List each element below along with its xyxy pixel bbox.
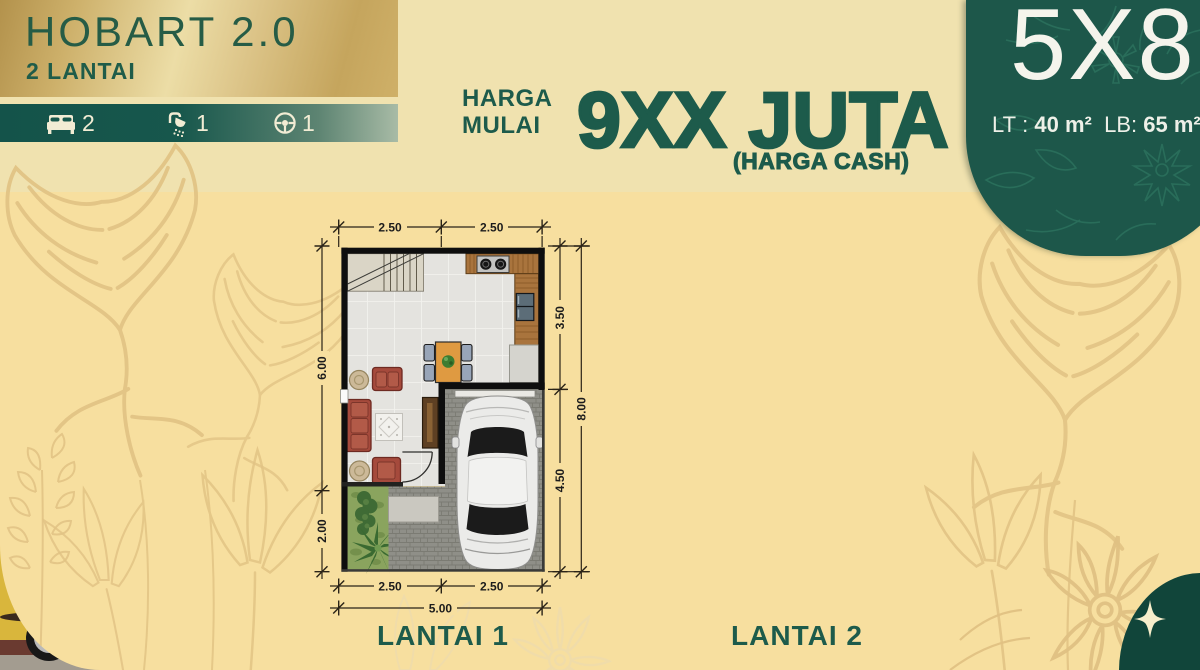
- svg-text:2.50: 2.50: [378, 221, 402, 235]
- svg-text:8.00: 8.00: [574, 397, 588, 421]
- svg-text:3.50: 3.50: [553, 306, 567, 330]
- svg-text:2.50: 2.50: [480, 580, 504, 594]
- svg-text:2.50: 2.50: [378, 580, 402, 594]
- svg-text:6.00: 6.00: [315, 356, 329, 380]
- svg-text:2.50: 2.50: [480, 221, 504, 235]
- svg-text:2.00: 2.00: [315, 519, 329, 543]
- svg-text:5.00: 5.00: [429, 602, 453, 616]
- svg-text:4.50: 4.50: [553, 468, 567, 492]
